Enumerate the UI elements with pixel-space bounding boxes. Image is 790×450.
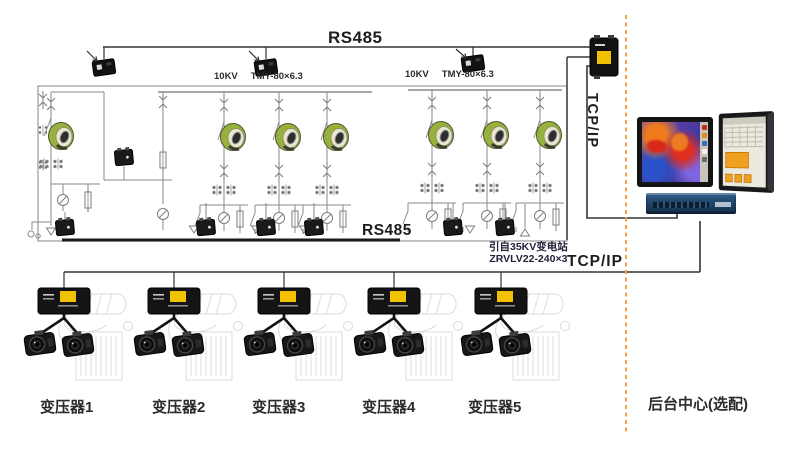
rs485-top-bus-line — [103, 47, 590, 59]
scada-chip — [744, 174, 752, 183]
monitoring-controllers — [38, 288, 527, 314]
feeder-bay — [250, 92, 303, 234]
protection-relay-device — [256, 217, 275, 236]
thermal-camera-device — [498, 330, 531, 357]
busbar-type-label: TMY-80×6.3 — [251, 71, 303, 82]
protection-relay-device — [304, 217, 323, 236]
busbar-type-label: TMY-80×6.3 — [442, 69, 494, 80]
feeder-bay — [298, 92, 351, 234]
disconnector-symbol — [39, 91, 47, 109]
incoming-source-label: 引自35KV变电站 ZRVLV22-240×3 — [489, 242, 568, 265]
toolbar-icon — [702, 149, 707, 154]
toolbar-icon — [702, 125, 707, 130]
thermal-image-screen — [642, 122, 708, 182]
transformer-cluster-group — [23, 288, 569, 380]
protection-relay-device — [495, 217, 514, 236]
camera-wires — [40, 314, 515, 334]
rs485-field-label: RS485 — [362, 222, 412, 240]
network-switch-device — [646, 193, 736, 214]
toolbar-icon — [702, 133, 707, 138]
monitoring-controller-device — [475, 288, 527, 314]
protection-relay-device — [114, 147, 133, 166]
pt-fuse-bay — [158, 92, 169, 230]
tcpip-link-label: TCP/IP — [584, 93, 600, 149]
monitoring-controller-device — [258, 288, 310, 314]
touch-monitor-scada — [719, 111, 774, 193]
feeder-bay — [195, 92, 248, 234]
switchgear-schematic — [28, 86, 567, 241]
thermal-camera-device — [23, 329, 56, 356]
protection-relay-device — [55, 217, 74, 236]
thermal-camera-device — [391, 330, 424, 357]
relay-stubs — [65, 203, 505, 220]
monitoring-controller-device — [148, 288, 200, 314]
rs485-top-label: RS485 — [328, 28, 382, 48]
scada-chip — [734, 174, 742, 183]
transformer-3-label: 变压器3 — [252, 396, 305, 417]
voltage-label: 10KV — [405, 69, 429, 80]
transformer-5-label: 变压器5 — [468, 396, 521, 417]
thermal-camera-device — [460, 329, 493, 356]
thermal-camera-device — [353, 329, 386, 356]
incoming-source-line2: ZRVLV22-240×3 — [489, 254, 568, 266]
feeder-bay — [403, 90, 456, 232]
thermal-camera-device — [243, 329, 276, 356]
arrow-down-symbol — [466, 226, 475, 233]
thermal-hotspot-blob — [671, 133, 688, 151]
touch-monitor-thermal — [637, 117, 713, 187]
system-architecture-diagram: RS485 10KV TMY-80×6.3 10KV TMY-80×6.3 RS… — [0, 0, 790, 450]
scada-table — [724, 125, 763, 147]
thermal-cameras — [23, 329, 531, 357]
backend-center-label: 后台中心(选配) — [648, 393, 748, 414]
pointer-arrow-icon — [87, 49, 466, 61]
thermal-hotspot-blob — [647, 140, 667, 153]
transformer-2-label: 变压器2 — [152, 396, 205, 417]
voltage-label: 10KV — [214, 71, 238, 82]
monitoring-controller-device — [368, 288, 420, 314]
incoming-source-line1: 引自35KV变电站 — [489, 242, 568, 254]
incoming-bay — [28, 92, 172, 238]
scada-screen — [723, 116, 766, 187]
screen-toolbar — [700, 122, 708, 182]
ct-ring-device — [49, 123, 74, 150]
scada-panel — [725, 152, 749, 168]
thermal-camera-device — [281, 330, 314, 357]
feeder-bay — [458, 90, 511, 232]
thermal-camera-device — [133, 329, 166, 356]
protection-relay-device — [196, 217, 215, 236]
incoming-35kv-line — [521, 204, 530, 236]
thermal-camera-device — [171, 330, 204, 357]
thermal-camera-device — [61, 330, 94, 357]
gateway-device — [590, 35, 618, 79]
transformer-1-label: 变压器1 — [40, 396, 93, 417]
switch-label-badge — [715, 202, 731, 207]
scada-button-row — [725, 174, 751, 184]
scada-chip — [725, 174, 732, 183]
monitoring-controller-device — [38, 288, 90, 314]
switch-ports — [653, 202, 709, 208]
busbar-spec-label: 10KV TMY-80×6.3 — [214, 71, 303, 82]
tcpip-field-label: TCP/IP — [567, 253, 623, 271]
busbar-spec-label: 10KV TMY-80×6.3 — [405, 69, 494, 80]
feeder-bay — [511, 90, 564, 232]
toolbar-icon — [702, 157, 707, 162]
transformer-4-label: 变压器4 — [362, 396, 415, 417]
scada-header-bar — [723, 116, 766, 124]
toolbar-icon — [702, 141, 707, 146]
